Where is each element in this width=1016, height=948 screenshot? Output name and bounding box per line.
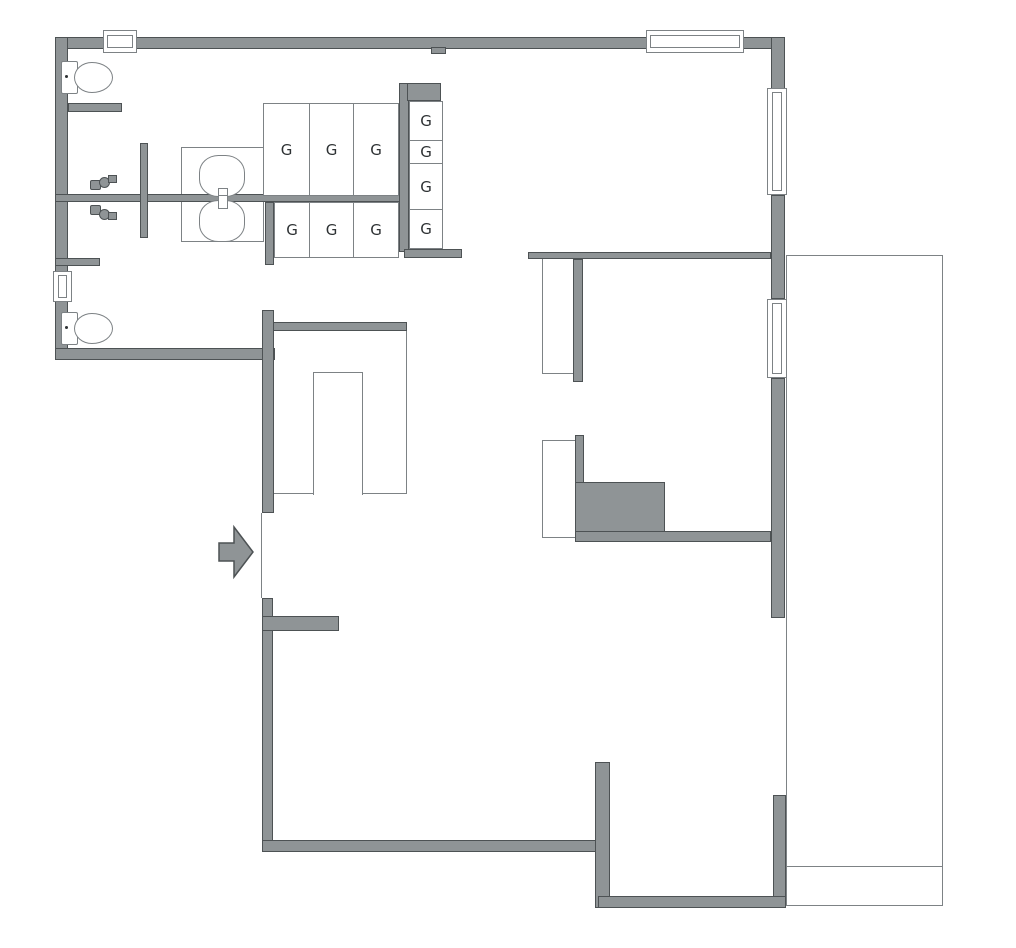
- toilet-icon: [61, 311, 112, 345]
- kitchen-nook-outline: [542, 440, 575, 538]
- toilet-bowl: [74, 62, 113, 93]
- locker-cell: G: [354, 203, 398, 257]
- locker-cell: G: [275, 203, 310, 257]
- locker-left-stub-wall: [265, 202, 274, 265]
- bottom-wall: [262, 840, 610, 852]
- window-right-upper: [767, 88, 787, 195]
- window-left: [53, 271, 72, 302]
- locker-row-bottom: G G G: [274, 202, 399, 258]
- entry-left-wall: [262, 598, 273, 851]
- right-side-area-divider: [786, 866, 943, 867]
- locker-cell: G: [310, 203, 354, 257]
- outer-wall-right-3: [771, 378, 785, 618]
- sink-icon: [199, 200, 245, 242]
- kitchen-counter: [575, 482, 665, 533]
- locker-cell: G: [410, 164, 442, 210]
- kitchen-stub-wall: [575, 435, 584, 484]
- locker-cell: G: [410, 210, 442, 248]
- faucet-icon: [90, 201, 117, 222]
- staircase-left-wall: [262, 310, 274, 513]
- closet-outline: [542, 259, 573, 374]
- top-wall-tab: [431, 47, 446, 54]
- toilet-stall-stub-wall: [68, 103, 122, 112]
- outer-wall-right-2: [771, 195, 785, 299]
- sink-icon: [199, 155, 245, 197]
- kitchen-wall: [575, 531, 771, 542]
- window-top-right: [646, 30, 744, 53]
- locker-cell: G: [410, 141, 442, 164]
- closet-wall: [573, 259, 583, 382]
- entry-stub-wall: [262, 616, 339, 631]
- lower-bottom-wall: [598, 896, 786, 908]
- upper-room-wall: [528, 252, 771, 259]
- toilet-bowl: [74, 313, 113, 344]
- mid-vertical-wall: [595, 762, 610, 908]
- outer-wall-right-1: [771, 37, 785, 90]
- entry-opening-line: [261, 513, 262, 598]
- right-side-area-outline: [786, 255, 943, 906]
- floor-plan: G G G G G G G G G G: [0, 0, 1016, 948]
- staircase-inner-well: [313, 372, 363, 495]
- locker-cell: G: [310, 104, 354, 195]
- locker-cell: G: [354, 104, 398, 195]
- bathroom-bottom-wall: [55, 348, 275, 360]
- sink-partition-wall: [140, 143, 148, 238]
- window-top-left: [103, 30, 137, 53]
- staircase-top-wall: [270, 322, 407, 331]
- toilet-icon: [61, 60, 112, 94]
- locker-top-cap-wall: [407, 83, 441, 101]
- locker-bottom-bar-wall: [404, 249, 462, 258]
- outer-wall-right-4: [773, 795, 786, 908]
- window-right-lower: [767, 299, 787, 378]
- lower-stall-stub-wall: [55, 258, 100, 266]
- sink-faucet: [218, 195, 228, 209]
- entrance-arrow-icon: [216, 524, 256, 580]
- locker-cell: G: [410, 102, 442, 141]
- faucet-icon: [90, 173, 117, 194]
- locker-row-top: G G G: [263, 103, 399, 196]
- locker-column-right: G G G G: [409, 101, 443, 249]
- locker-vertical-wall: [399, 83, 409, 252]
- locker-cell: G: [264, 104, 310, 195]
